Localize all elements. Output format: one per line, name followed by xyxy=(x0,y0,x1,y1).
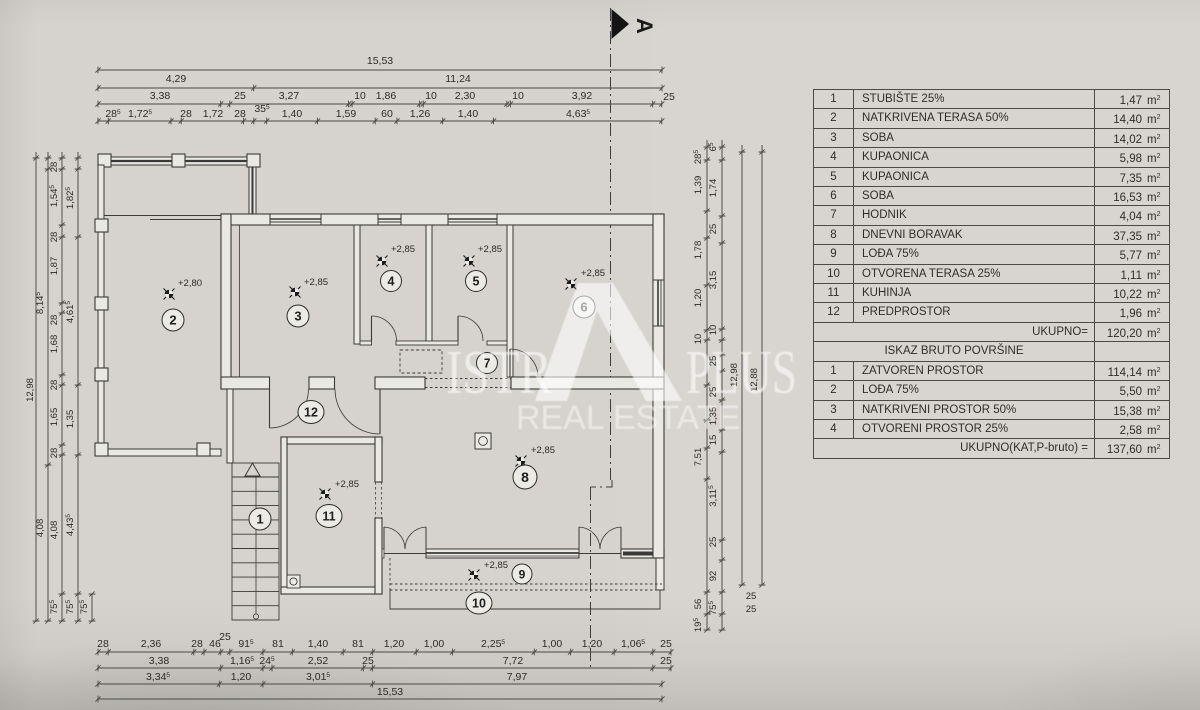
svg-text:PLUS: PLUS xyxy=(686,339,797,407)
svg-text:ISTR: ISTR xyxy=(446,339,553,407)
svg-text:REAL ESTATE: REAL ESTATE xyxy=(516,399,740,437)
